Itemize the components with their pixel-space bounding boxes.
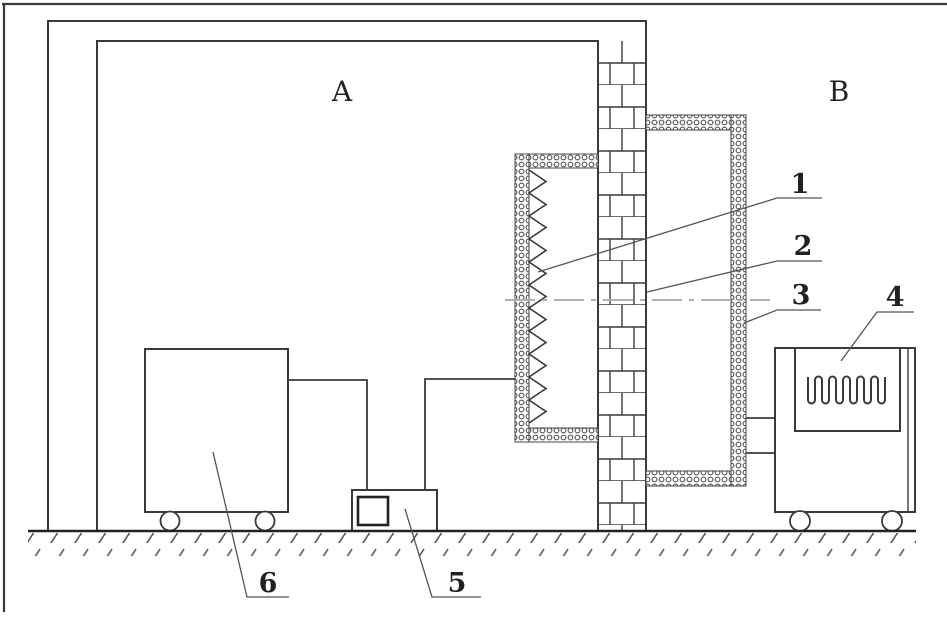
zone-b-label: B bbox=[829, 75, 850, 108]
cable-unit5-to-specimen bbox=[425, 379, 515, 490]
callout-2: 2 bbox=[794, 231, 813, 262]
callout-3: 3 bbox=[792, 280, 811, 311]
leader-line-3 bbox=[744, 310, 821, 323]
machine4-wheel-right bbox=[882, 511, 902, 531]
callout-1: 1 bbox=[791, 169, 810, 200]
brick-wall bbox=[598, 41, 646, 530]
specimen-frame-left-band bbox=[515, 154, 529, 442]
ground-hatching bbox=[28, 533, 916, 556]
callout-5: 5 bbox=[448, 568, 467, 599]
specimen-frame-a bbox=[515, 154, 598, 442]
cable-cabinet6-to-unit5 bbox=[288, 380, 367, 490]
cabinet6-wheel-right bbox=[256, 512, 275, 531]
zone-a-label: A bbox=[331, 75, 353, 108]
machine-4 bbox=[775, 348, 915, 531]
heater-element-zigzag bbox=[529, 170, 546, 423]
callout-6: 6 bbox=[259, 568, 278, 599]
cabinet6-body bbox=[145, 349, 288, 512]
schematic-figure: A B 1 2 3 4 5 6 bbox=[0, 0, 947, 619]
schematic-canvas: A B 1 2 3 4 5 6 bbox=[0, 0, 947, 619]
machine4-wheel-left bbox=[790, 511, 810, 531]
cabinet6-wheel-left bbox=[161, 512, 180, 531]
equipment-cabinet-6 bbox=[145, 349, 288, 531]
control-unit-5 bbox=[352, 490, 437, 531]
unit5-display bbox=[358, 497, 388, 525]
callout-4: 4 bbox=[886, 282, 905, 313]
